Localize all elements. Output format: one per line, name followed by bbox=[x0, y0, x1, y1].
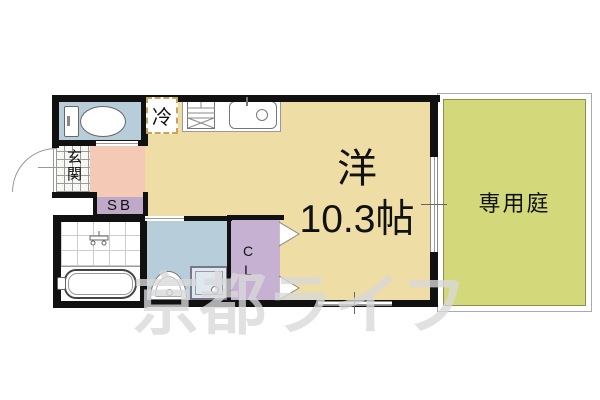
wall-washroom-top bbox=[184, 216, 232, 221]
garden-label: 専用庭 bbox=[443, 184, 586, 220]
sink-faucet-circle bbox=[256, 109, 268, 121]
main-room-label: 洋 10.3帖 bbox=[252, 146, 462, 256]
kitchen-sink bbox=[229, 101, 277, 129]
bath-divider bbox=[61, 266, 140, 267]
floorplan: SB 冷 洋 10.3帖 専用庭 玄関 CL 京都ライフ bbox=[0, 0, 600, 400]
sink-tap bbox=[246, 97, 248, 106]
wall-shoebox-right bbox=[143, 192, 148, 216]
toilet-door bbox=[96, 141, 138, 146]
shower-mixer-icon bbox=[88, 231, 110, 246]
tub-faucet bbox=[57, 277, 66, 290]
window-bottom bbox=[318, 301, 392, 306]
main-room-size: 10.3帖 bbox=[300, 196, 415, 244]
window-bottom-tick bbox=[354, 292, 355, 314]
wall-shoebox-bottom bbox=[93, 214, 148, 219]
closet-label: CL bbox=[240, 243, 256, 283]
shoe-box-floor: SB bbox=[97, 197, 143, 214]
refrigerator-space: 冷 bbox=[146, 97, 178, 134]
toilet-flush bbox=[67, 116, 70, 126]
stove-icon bbox=[187, 101, 215, 129]
toilet-bowl bbox=[80, 106, 126, 137]
wall-closet-left bbox=[227, 215, 231, 300]
entrance-label: 玄関 bbox=[63, 149, 84, 193]
washroom-door bbox=[145, 216, 184, 221]
hall-floor bbox=[90, 145, 145, 197]
washer-pan bbox=[190, 266, 228, 300]
main-room-type: 洋 bbox=[337, 146, 377, 192]
entrance-door-arc bbox=[12, 148, 56, 192]
entrance-door-jamb bbox=[53, 146, 57, 192]
bathtub bbox=[64, 269, 137, 299]
